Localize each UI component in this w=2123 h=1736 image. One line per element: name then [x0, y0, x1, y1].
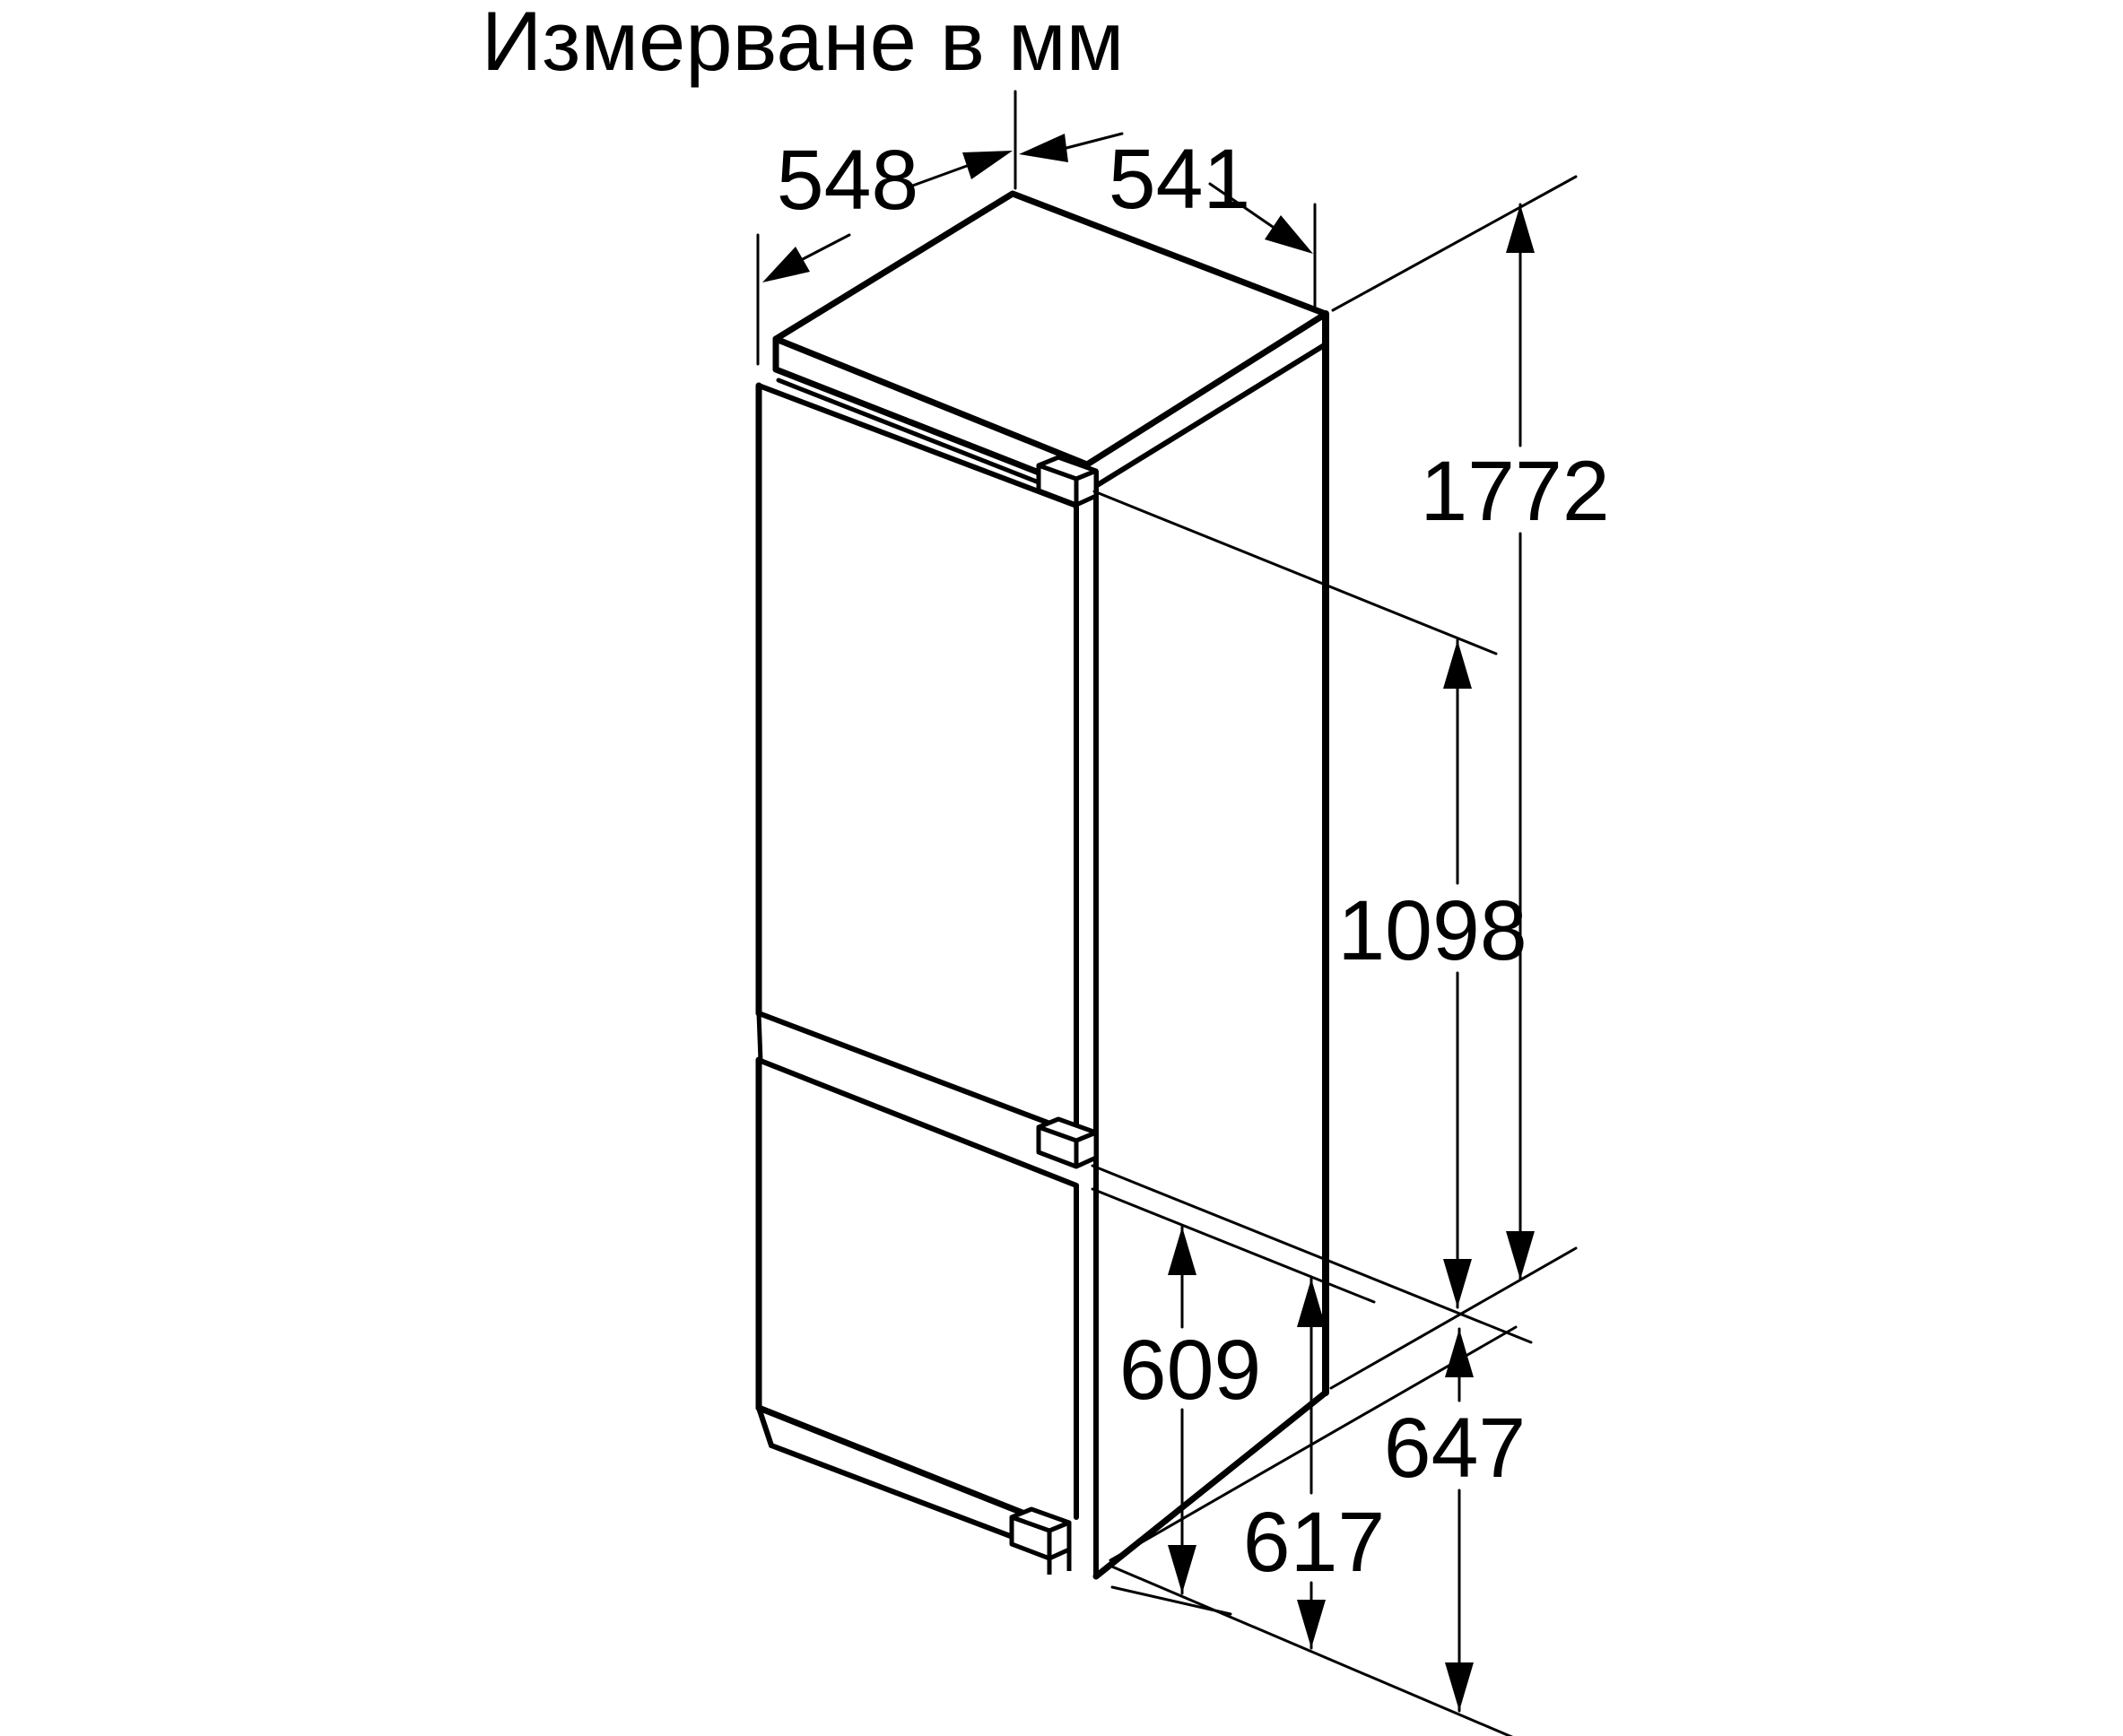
ext-1772-top [1333, 177, 1576, 310]
door-seam-left-step [759, 1013, 761, 1061]
dim-label-541: 541 [1109, 132, 1251, 227]
door-seam-upper-line [759, 1013, 1076, 1133]
arrow-548-right [962, 151, 1013, 179]
door-bottom-edge [759, 1408, 1040, 1520]
arrow-1772-down [1506, 1231, 1535, 1280]
arrow-609-up [1168, 1227, 1196, 1275]
dim-label-548: 548 [777, 133, 919, 228]
door-seam-lower-line [761, 1061, 1076, 1185]
dim-label-1098: 1098 [1337, 883, 1527, 978]
dim-548-leader-left [803, 235, 849, 259]
labels: Измерване в мм 548 541 1772 1098 609 647… [482, 0, 1610, 1590]
arrow-541-left [1019, 134, 1068, 162]
seam-hinge-block [1039, 1119, 1096, 1167]
dimension-drawing-page: Измерване в мм 548 541 1772 1098 609 647… [0, 0, 2123, 1736]
arrow-1098-up [1443, 640, 1472, 689]
bottom-hinge-block [1012, 1509, 1069, 1558]
door-top-edge [759, 386, 1076, 506]
ext-seam-lower [1092, 1189, 1374, 1302]
page-title: Измерване в мм [482, 0, 1125, 88]
dim-label-617: 617 [1243, 1495, 1386, 1590]
hinge-blocks [1012, 457, 1096, 1575]
arrow-617-up [1297, 1279, 1326, 1327]
fridge-dimension-diagram: Измерване в мм 548 541 1772 1098 609 647… [0, 0, 2123, 1736]
arrow-548-left [762, 247, 810, 282]
side-top-edge [1087, 344, 1326, 491]
arrow-1098-down [1443, 1259, 1472, 1307]
arrow-609-down [1168, 1545, 1196, 1593]
floor-line [1108, 1565, 1527, 1736]
dim-label-1772: 1772 [1420, 444, 1609, 539]
arrow-647-down [1445, 1662, 1474, 1711]
dim-label-647: 647 [1384, 1401, 1527, 1496]
door-bottom-underside [771, 1445, 1031, 1544]
dim-label-609: 609 [1119, 1323, 1262, 1418]
arrow-617-down [1297, 1600, 1326, 1648]
arrow-541-right [1265, 215, 1313, 254]
